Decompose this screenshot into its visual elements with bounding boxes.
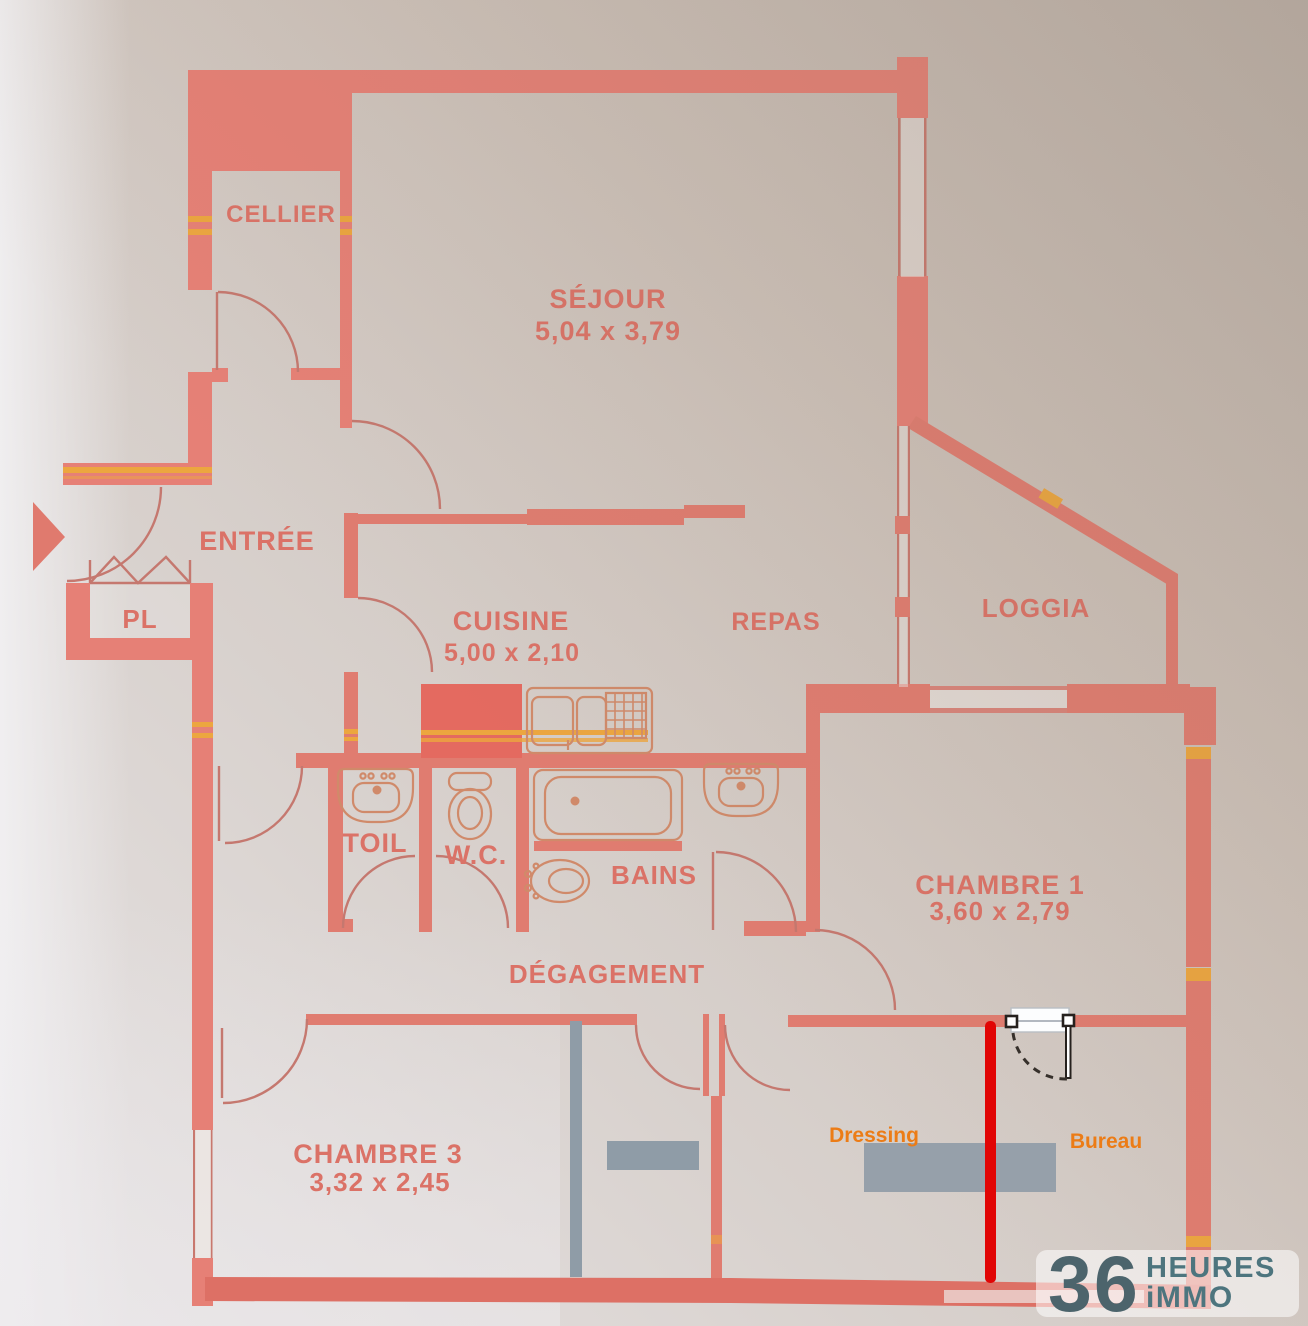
svg-text:Dressing: Dressing bbox=[829, 1124, 919, 1147]
svg-text:Bureau: Bureau bbox=[1070, 1130, 1142, 1153]
svg-text:iMMO: iMMO bbox=[1146, 1281, 1234, 1314]
svg-text:HEURES: HEURES bbox=[1146, 1252, 1276, 1284]
svg-text:36: 36 bbox=[1048, 1239, 1140, 1326]
